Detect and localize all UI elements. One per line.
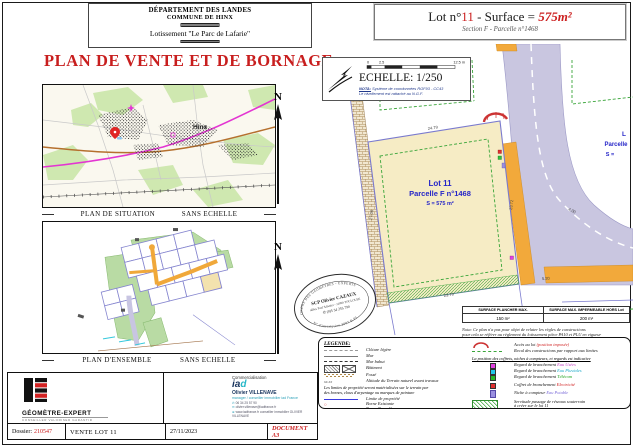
document-title-cell: VENTE LOT 11 [66, 424, 166, 440]
regard-eau-usees-icon [510, 256, 514, 260]
eau-potable-text: Eau Potable [546, 390, 568, 395]
eau-usees-text: Eau Usées [557, 362, 576, 367]
ensemble-map-drawing [43, 222, 275, 353]
agent-phone-line: ✆ 06 34 25 57 90 [232, 401, 317, 405]
compass-icon [326, 64, 354, 94]
lot-access-icon [484, 112, 507, 122]
caption-dash [42, 360, 54, 361]
ensemble-map [42, 221, 276, 354]
surveyor-brand: GÉOMÈTRE-EXPERT [22, 410, 163, 417]
dim-top: 24.79 [427, 124, 438, 131]
iad-logo: iad [232, 380, 317, 390]
niche-compteur-icon [502, 163, 505, 168]
format-cell: DOCUMENT A3 [268, 424, 317, 440]
lot-label: Lot 11 [428, 179, 452, 188]
legend-item: Coffret de branchement Electricité [472, 383, 625, 389]
servitude-line: S=22m² [514, 408, 528, 409]
neighbor-parcel-label: Parcelle [604, 142, 628, 148]
agent-email: olivier.villenave@iadfrance.fr [236, 405, 277, 409]
legend-label: Recul des constructions par rapport aux … [514, 349, 598, 354]
fosse-symbol [324, 374, 366, 378]
coffret-prefix: Coffret de branchement [514, 382, 557, 387]
caption-dash [264, 214, 276, 215]
niche-compteur-symbol [472, 390, 514, 398]
north-arrow-icon: N [270, 90, 286, 208]
parcel-label: Parcelle F n°1468 [409, 189, 471, 198]
recul-symbol [472, 351, 514, 352]
surface-table-value-2: 200 m² [544, 314, 630, 323]
department-label: DÉPARTEMENT DES LANDES [89, 7, 311, 14]
limite-symbol [324, 399, 366, 400]
north-letter: N [274, 91, 282, 103]
scale-tick-2: 12.5 m [453, 61, 465, 65]
servitude-symbol [472, 400, 514, 409]
batiment-symbol [324, 365, 366, 373]
town-label: Hinx [193, 124, 207, 131]
dossier-cell: Dossier:210547 [8, 424, 66, 440]
scale-tick-1: 2.5 [379, 61, 384, 65]
neighbor-lot-label: L [622, 131, 626, 138]
acces-text: Accès au lot [514, 342, 537, 347]
legend-label: Coffret de branchement Electricité [514, 383, 575, 388]
legend-label: Altitude du Terrain naturel avant travau… [366, 379, 438, 384]
lot-summary-box: Lot n°11 - Surface = 575m² Section F - P… [374, 4, 626, 40]
legend-item: Regard de branchement Télécom [472, 375, 625, 381]
plan-sheet: DÉPARTEMENT DES LANDES COMMUNE DE HINX L… [0, 0, 633, 447]
parcel-surface-label: S = 575 m² [426, 200, 454, 207]
plan-nota: Nota: Ce plan n'a pas pour objet de rela… [462, 327, 633, 337]
legend-item: Bâtiment [324, 365, 466, 373]
title-block: GÉOMÈTRE-EXPERT CONSEILLER VALORISER GAR… [7, 372, 318, 440]
header-box: DÉPARTEMENT DES LANDES COMMUNE DE HINX L… [88, 3, 312, 48]
surface-table-value-1: 150 m² [463, 314, 544, 323]
agent-web-line: ⊕ www.iadfrance.fr conseiller immobilier… [232, 410, 317, 418]
surveyor-logo-cell: GÉOMÈTRE-EXPERT CONSEILLER VALORISER GAR… [8, 373, 164, 423]
regard-telecom-symbol [472, 375, 514, 381]
surface-label: - Surface = [474, 9, 538, 24]
surveyor-stamp-seal: ORDRE DES GÉOMÈTRES - EXPERTS N° d'inscr… [292, 271, 378, 337]
legend-title: LEGENDE: [324, 341, 466, 347]
legend-label: Regard de branchement Télécom [514, 375, 572, 380]
legend-label: Accès au lot (position imposée) [514, 343, 569, 348]
legend-item: □Borne Nouvelle [324, 407, 466, 409]
regard-telecom-icon [498, 156, 502, 160]
electricite-text: Electricité [557, 382, 575, 387]
surveyor-tagline: CONSEILLER VALORISER GARANTIR [22, 417, 108, 422]
dim-bottom: 23.79 [443, 291, 454, 298]
legend-label: Servitude passage de réseaux souterrainà… [514, 400, 585, 409]
north-letter: N [274, 241, 282, 253]
nota-line-2: Le nivellement est rattaché au N.G.F. [359, 91, 423, 96]
lot-prefix: Lot n° [428, 9, 461, 24]
lot-number: 11 [461, 9, 474, 24]
cloture-symbol [324, 350, 366, 351]
legend-left-column: LEGENDE: Clôture légère Mur Mur bahut Bâ… [324, 341, 466, 405]
niche-prefix: Niche à compteur [514, 390, 546, 395]
situation-caption-text: PLAN DE SITUATION [81, 210, 155, 218]
surface-table-header-2: SURFACE MAX. IMPERMEABLE HORS Lot [544, 307, 630, 314]
title-block-top-row: GÉOMÈTRE-EXPERT CONSEILLER VALORISER GAR… [8, 373, 317, 424]
page-title: PLAN DE VENTE ET DE BORNAGE [44, 51, 333, 71]
iad-logo-accent: d [240, 379, 246, 390]
borne-nouvelle-symbol: □ [324, 407, 366, 409]
situation-map-drawing: Hinx [43, 85, 275, 207]
agent-email-line: ✉ olivier.villenave@iadfrance.fr [232, 405, 317, 409]
legend-right-column: Accès au lot (position imposée) Recul de… [472, 341, 625, 405]
legend-label: Borne Nouvelle [366, 407, 393, 409]
scale-box: 0 2.5 12.5 m ECHELLE: 1/250 NOTA: Systèm… [322, 57, 471, 101]
altitude-symbol: xx.xx [324, 379, 366, 384]
agent-role: manager / conseiller immobilier iad Fran… [232, 396, 317, 400]
legend-note-line: des bornes, clous d'arpentage ou marques… [324, 390, 414, 395]
legend-label: Bâtiment [366, 366, 382, 371]
dim-road: 5.20 [542, 276, 551, 281]
surface-table-header-1: SURFACE PLANCHER MAX. [463, 307, 544, 314]
ensemble-scale-note: SANS ECHELLE [180, 356, 236, 364]
lot-title: Lot n°11 - Surface = 575m² [375, 9, 625, 25]
divider-bar [180, 23, 220, 27]
ensemble-caption-text: PLAN D'ENSEMBLE [82, 356, 151, 364]
legend-item: Niche à compteur Eau Potable [472, 390, 625, 398]
legend-note: Les limites de propriété seront matérial… [324, 386, 466, 395]
lot-11-parcel [368, 121, 519, 303]
coffret-electricite-symbol [472, 383, 514, 389]
title-block-bottom-row: Dossier:210547 VENTE LOT 11 27/11/2023 D… [8, 424, 317, 440]
mail-icon: ✉ [232, 405, 235, 409]
regard-prefix: Regard de branchement [514, 374, 557, 379]
section-parcel-label: Section F - Parcelle n°1468 [375, 26, 625, 33]
eau-pluviales-text: Eau Pluviales [557, 368, 582, 373]
agent-phone: 06 34 25 57 90 [236, 401, 257, 405]
commercialisation-cell: Commercialisation iad Olivier VILLENAVE … [164, 373, 317, 423]
neighbor-surface-label: S = [606, 152, 614, 158]
legend-box: LEGENDE: Clôture légère Mur Mur bahut Bâ… [318, 337, 631, 409]
telecom-text: Télécom [557, 374, 572, 379]
situation-caption: PLAN DE SITUATION SANS ECHELLE [42, 210, 276, 218]
dossier-number: 210547 [34, 429, 52, 435]
legend-item: xx.xxAltitude du Terrain naturel avant t… [324, 378, 466, 384]
regard-prefix: Regard de branchement [514, 362, 557, 367]
lotissement-label: Lotissement "Le Parc de Lafarie" [89, 29, 311, 38]
date-cell: 27/11/2023 [166, 424, 268, 440]
document-format: DOCUMENT A3 [272, 425, 313, 439]
agent-web: www.iadfrance.fr conseiller immobilier O… [232, 410, 302, 418]
coffret-electricite-icon [498, 150, 502, 154]
caption-dash [42, 214, 54, 215]
legend-label: Niche à compteur Eau Potable [514, 391, 568, 396]
scale-label: ECHELLE: 1/250 [359, 72, 442, 84]
acces-symbol [472, 341, 514, 349]
acces-red-text: (position imposée) [537, 342, 570, 347]
situation-map: Hinx [42, 84, 276, 208]
mur-bahut-symbol [324, 361, 366, 362]
geometre-expert-logo-icon [22, 377, 52, 403]
scale-tick-0: 0 [367, 61, 369, 65]
legend-item: Servitude passage de réseaux souterrainà… [472, 400, 625, 409]
commune-label: COMMUNE DE HINX [89, 14, 311, 21]
mur-symbol [324, 356, 366, 357]
north-arrow-icon: N [270, 240, 286, 358]
ensemble-caption: PLAN D'ENSEMBLE SANS ECHELLE [42, 356, 276, 364]
caption-dash [264, 360, 276, 361]
divider-bar [180, 40, 220, 44]
scale-bar: 0 2.5 12.5 m [357, 59, 467, 73]
legend-label: Mur bahut [366, 360, 385, 365]
dossier-label: Dossier: [12, 429, 32, 435]
legend-coffrets-note: La position des coffrets, niches à compt… [472, 356, 625, 361]
surface-value: 575m² [538, 9, 572, 24]
regard-prefix: Regard de branchement [514, 368, 557, 373]
situation-scale-note: SANS ECHELLE [182, 210, 238, 218]
legend-item: Recul des constructions par rapport aux … [472, 349, 625, 355]
surface-table: SURFACE PLANCHER MAX. SURFACE MAX. IMPER… [462, 306, 630, 323]
phone-icon: ✆ [232, 401, 235, 405]
